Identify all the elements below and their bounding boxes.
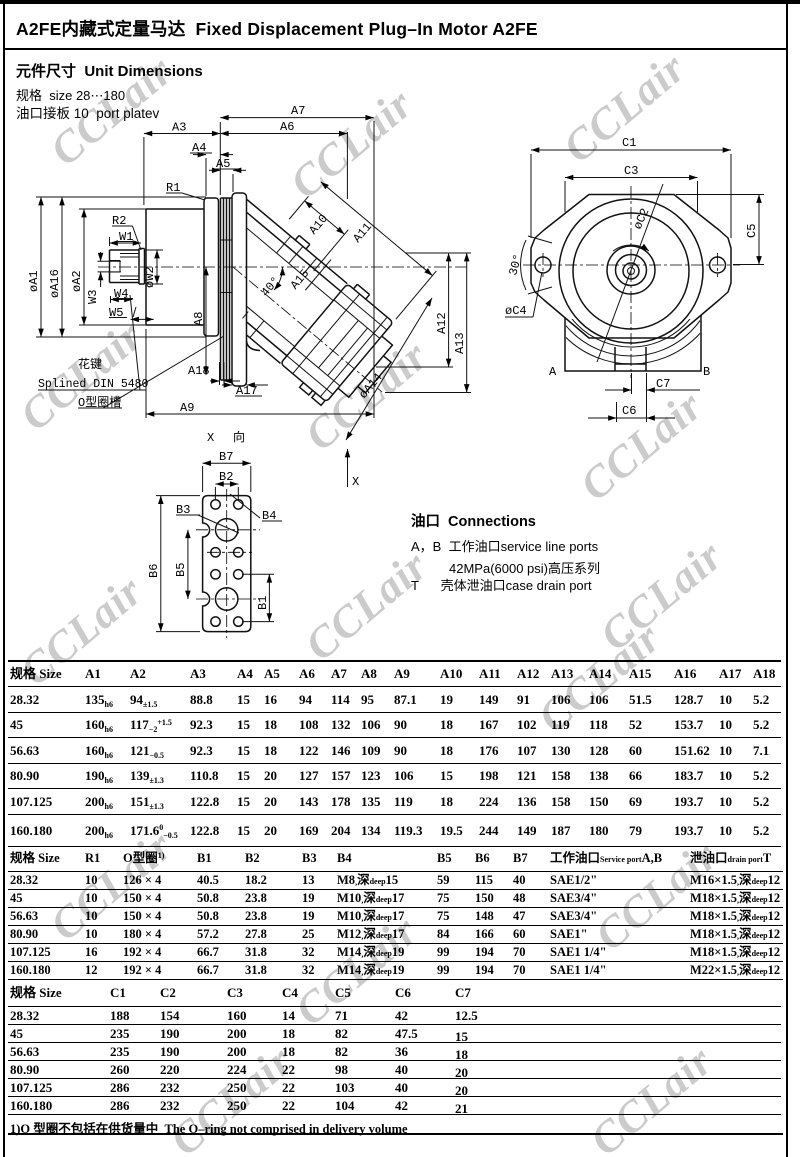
svg-text:A10: A10 <box>306 212 331 238</box>
svg-text:Splined DIN 5480: Splined DIN 5480 <box>38 378 149 391</box>
svg-text:A13: A13 <box>453 332 467 354</box>
svg-text:C1: C1 <box>622 136 636 150</box>
svg-text:B2: B2 <box>219 470 233 484</box>
svg-text:40°: 40° <box>258 274 283 300</box>
svg-text:B7: B7 <box>219 450 233 464</box>
svg-text:A7: A7 <box>291 104 305 118</box>
svg-text:C5: C5 <box>745 224 759 238</box>
svg-text:C3: C3 <box>624 164 638 178</box>
svg-text:W3: W3 <box>86 290 100 304</box>
svg-text:øC4: øC4 <box>505 304 527 318</box>
svg-text:øC2: øC2 <box>631 206 653 231</box>
svg-text:C7: C7 <box>656 377 670 391</box>
svg-text:øA16: øA16 <box>48 269 62 298</box>
svg-text:A6: A6 <box>280 120 294 134</box>
svg-text:X: X <box>207 431 214 445</box>
svg-text:A8: A8 <box>192 312 206 326</box>
svg-text:B1: B1 <box>256 596 270 610</box>
svg-text:A9: A9 <box>180 401 194 415</box>
svg-text:A18: A18 <box>188 364 210 378</box>
svg-text:A3: A3 <box>172 121 186 135</box>
svg-text:30°: 30° <box>506 253 525 277</box>
svg-text:C6: C6 <box>622 404 636 418</box>
svg-text:花键: 花键 <box>78 355 102 372</box>
svg-text:B: B <box>703 365 710 379</box>
svg-text:B5: B5 <box>174 563 188 577</box>
svg-text:X: X <box>352 475 359 489</box>
svg-text:B6: B6 <box>147 564 161 578</box>
svg-text:øA2: øA2 <box>70 270 84 292</box>
svg-text:øW2: øW2 <box>143 266 157 288</box>
svg-text:A15: A15 <box>288 267 313 293</box>
svg-text:向: 向 <box>233 428 245 445</box>
svg-text:øA1: øA1 <box>27 270 41 292</box>
svg-text:A12: A12 <box>435 312 449 334</box>
svg-text:A: A <box>549 365 557 379</box>
